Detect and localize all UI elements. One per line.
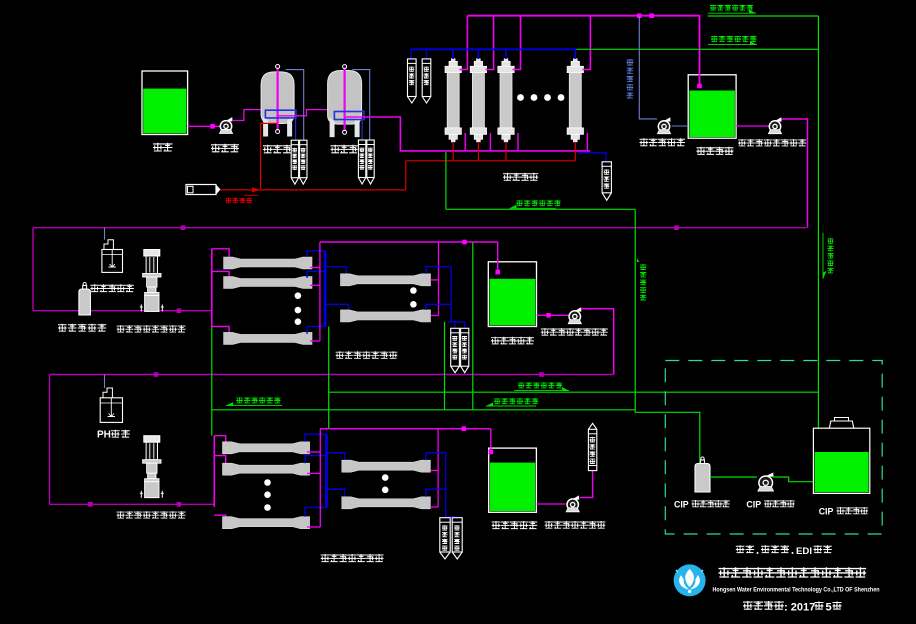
svg-text:PH: PH (97, 430, 111, 441)
svg-text:: 2017: : 2017 (784, 601, 815, 613)
svg-text:CIP: CIP (746, 500, 761, 510)
svg-text:Hongsen Water Environmental Te: Hongsen Water Environmental Technology C… (713, 587, 880, 594)
svg-text:CIP: CIP (819, 507, 834, 517)
svg-text:CIP: CIP (674, 500, 689, 510)
svg-text:5: 5 (826, 601, 832, 613)
svg-text:EDI: EDI (796, 546, 812, 557)
